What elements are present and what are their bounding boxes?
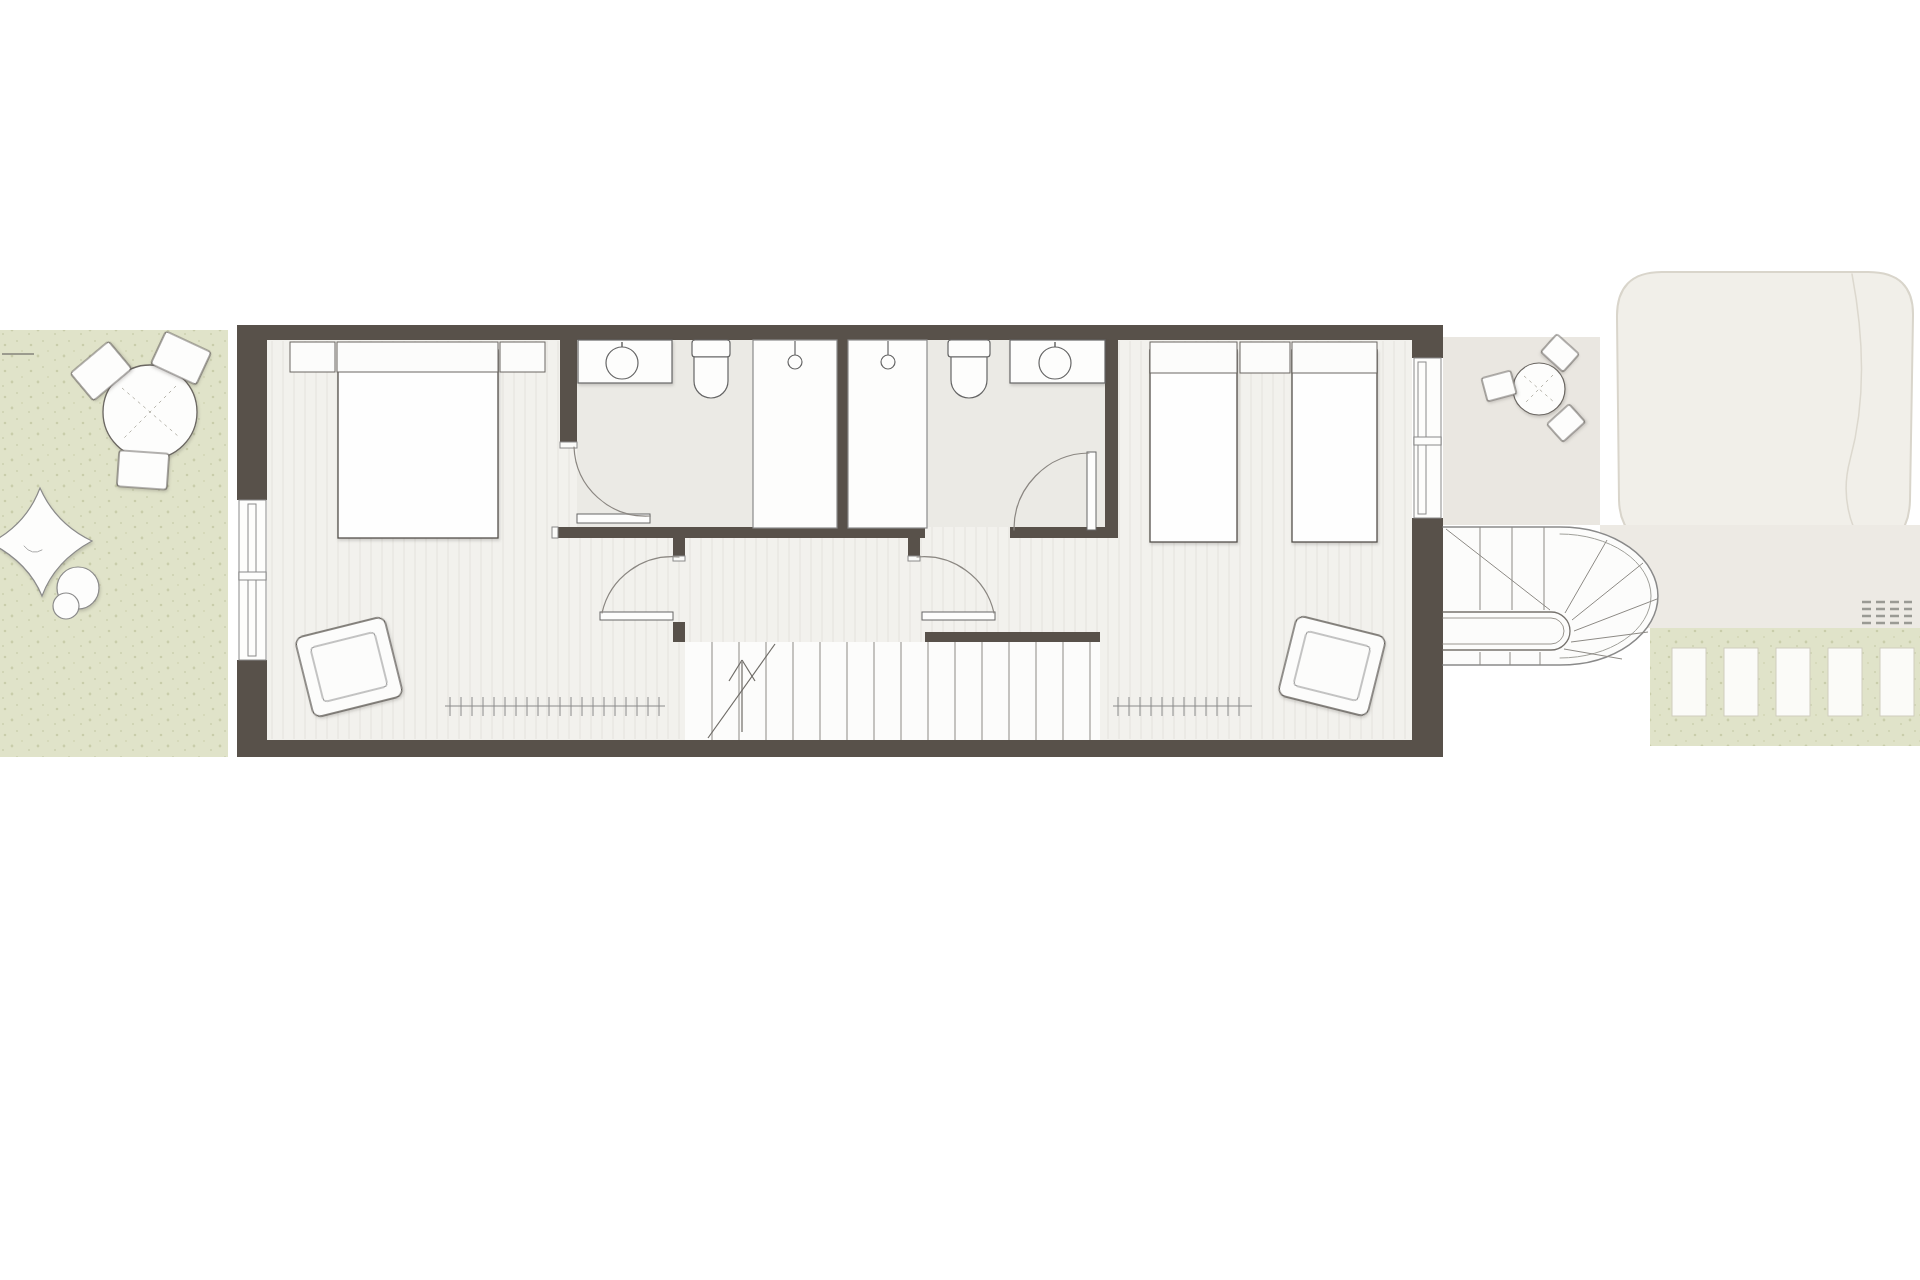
terrace-table	[1513, 363, 1565, 415]
basin-1	[606, 347, 638, 379]
single-bed-1	[1150, 350, 1237, 542]
door-hall-a-leaf	[600, 612, 673, 620]
shower-1-stall	[753, 340, 837, 528]
door-bathroom2-leaf	[1087, 452, 1096, 530]
wall-stairwell	[925, 632, 1100, 642]
single-bed-2-headboard	[1292, 342, 1377, 373]
paver-4	[1828, 648, 1862, 716]
wall-left-lower	[237, 660, 267, 740]
wall-stub-door-b	[908, 538, 920, 556]
door-hall-b-leaf	[922, 612, 995, 620]
double-bed-headboard	[337, 342, 498, 372]
toilet-1-bowl	[694, 357, 728, 398]
single-bed-2	[1292, 350, 1377, 542]
nightstand-left	[290, 342, 335, 372]
paver-5	[1880, 648, 1914, 716]
wall-left-upper	[237, 340, 267, 500]
staircase-well	[685, 642, 1100, 740]
wall-stub-stair	[673, 622, 685, 642]
wall-bathroom1-left	[560, 340, 577, 442]
floor-plan-canvas	[0, 0, 1920, 1280]
wall-right-upper	[1412, 340, 1443, 358]
terrace-deck	[1443, 337, 1600, 525]
wall-stub-door-a	[673, 538, 685, 556]
toilet-1-tank	[692, 340, 730, 357]
wall-right-lower	[1412, 518, 1443, 740]
window-left-transom	[239, 572, 266, 580]
nightstand-middle	[1240, 342, 1290, 373]
paver-1	[1672, 648, 1706, 716]
shower-2-stall	[848, 340, 927, 528]
wall-hall-right	[1010, 527, 1118, 538]
paver-2	[1724, 648, 1758, 716]
pouf-small	[53, 593, 79, 619]
garden-chair-3	[117, 450, 169, 489]
basin-2	[1039, 347, 1071, 379]
patio-slab	[1617, 272, 1913, 548]
wall-top	[237, 325, 1443, 340]
wall-bathroom2-right	[1105, 340, 1118, 527]
wall-between-bathrooms	[837, 340, 848, 527]
wall-bottom	[237, 740, 1443, 757]
paver-3	[1776, 648, 1810, 716]
toilet-2-tank	[948, 340, 990, 357]
nightstand-right	[500, 342, 545, 372]
toilet-2-bowl	[951, 357, 987, 398]
floor-plan-page	[0, 0, 1920, 1280]
wall-cap-hall-left	[552, 527, 558, 538]
double-bed	[338, 350, 498, 538]
window-right-transom	[1414, 437, 1441, 445]
wall-hall-left	[558, 527, 925, 538]
single-bed-1-headboard	[1150, 342, 1237, 373]
